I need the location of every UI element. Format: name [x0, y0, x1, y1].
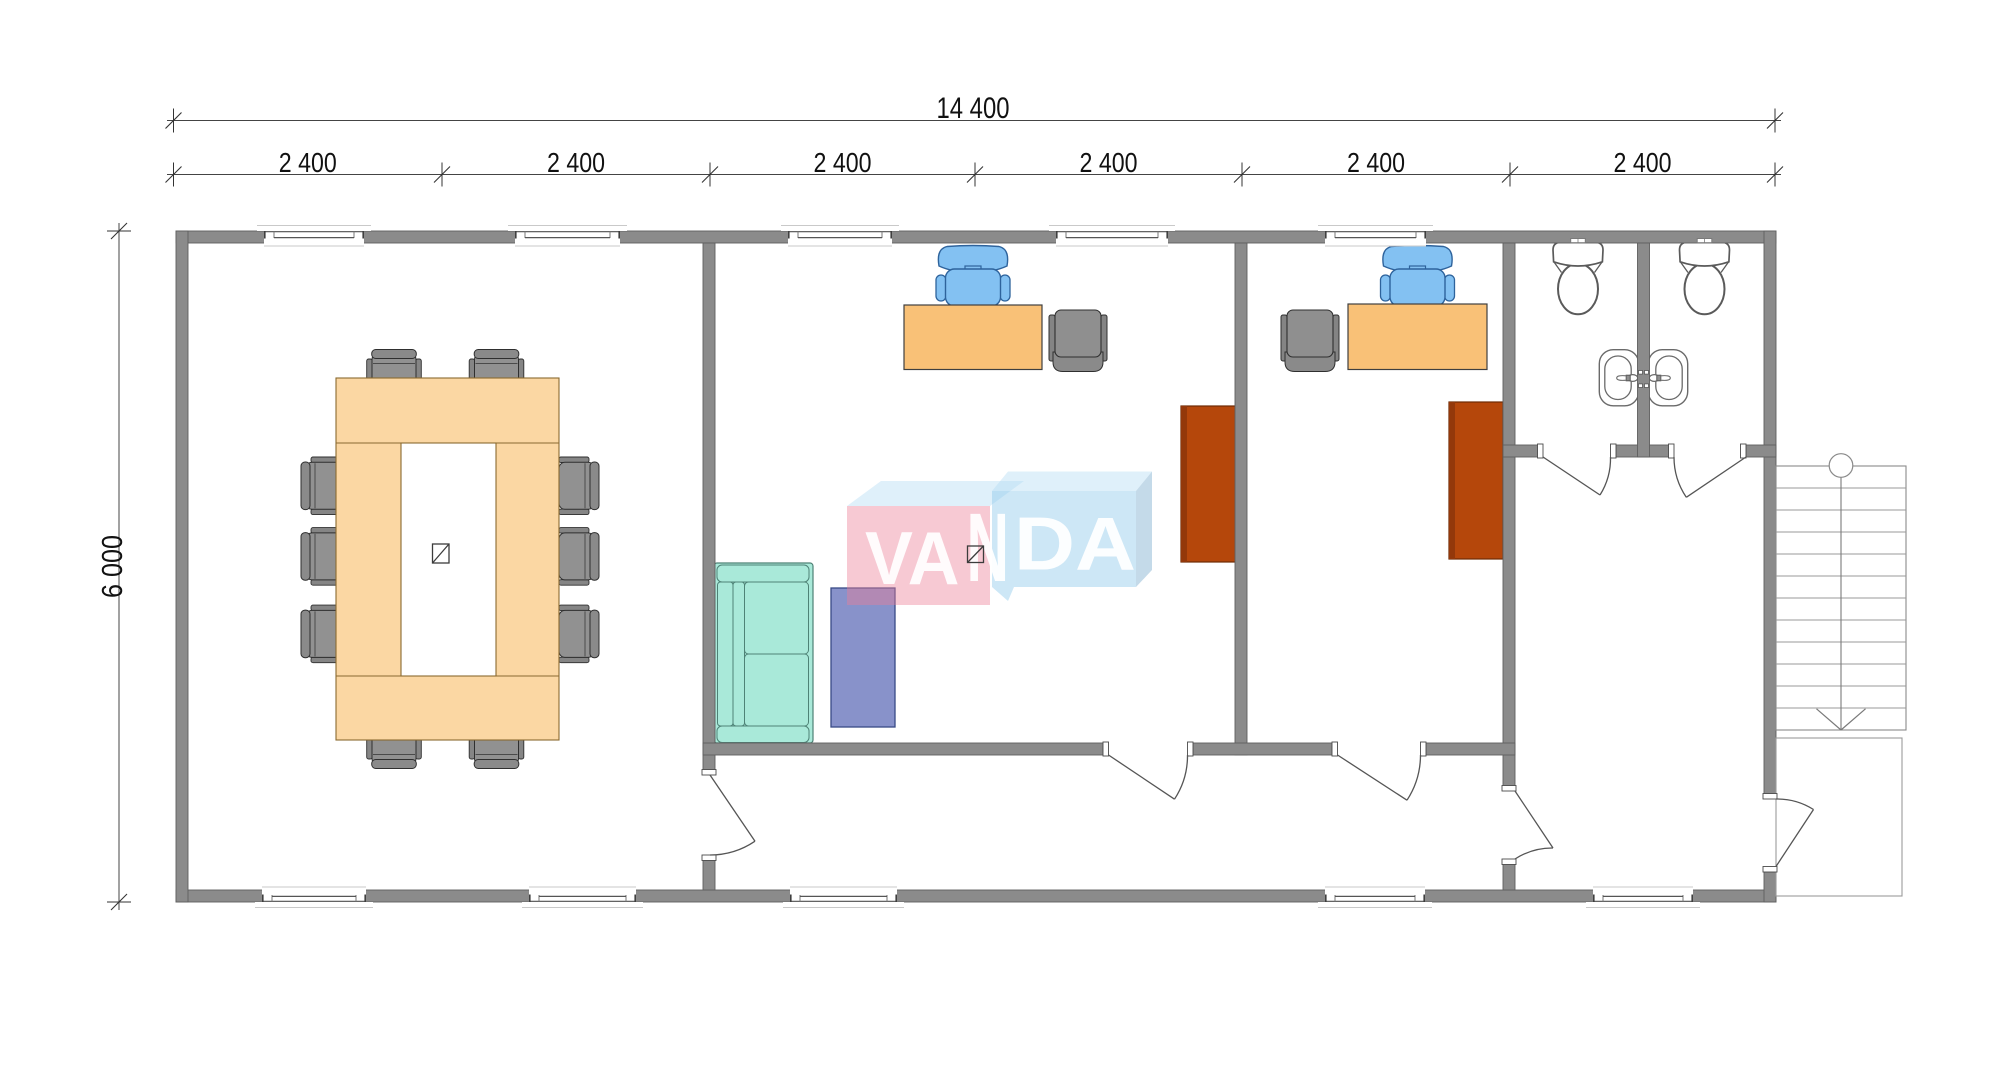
svg-text:N: N [967, 493, 1010, 602]
svg-text:2 400: 2 400 [1080, 147, 1138, 178]
svg-text:2 400: 2 400 [814, 147, 872, 178]
svg-text:DA: DA [1014, 502, 1136, 586]
svg-text:2 400: 2 400 [279, 147, 337, 178]
svg-text:2 400: 2 400 [1347, 147, 1405, 178]
svg-text:VA: VA [865, 516, 960, 600]
svg-text:2 400: 2 400 [547, 147, 605, 178]
svg-text:2 400: 2 400 [1614, 147, 1672, 178]
svg-text:14 400: 14 400 [937, 92, 1010, 125]
svg-text:6 000: 6 000 [97, 535, 129, 598]
